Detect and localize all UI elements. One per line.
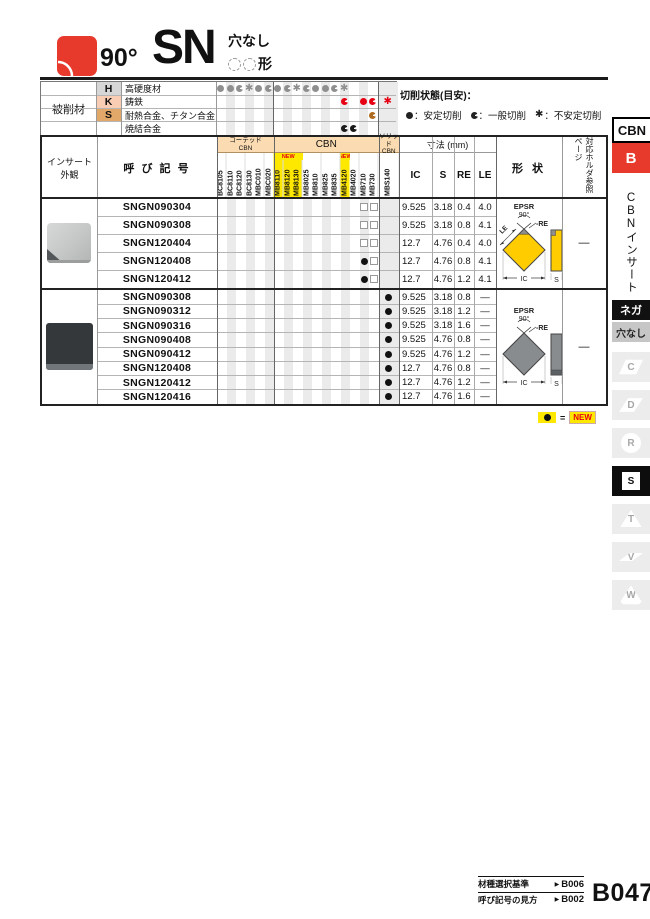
insert-designation: SNGN120408 xyxy=(97,361,217,375)
col-header-holder-ref: 対応ホルダ参照ページ xyxy=(562,137,606,198)
insert-photo-edge xyxy=(46,364,93,370)
insert-designation: SNGN120404 xyxy=(97,234,217,252)
mark-full xyxy=(385,308,392,315)
column-divider xyxy=(432,137,433,404)
footer-link-page-ref[interactable]: ▶B002 xyxy=(555,894,584,905)
sidebar-section-letter[interactable]: B xyxy=(612,143,650,173)
grade-column-label-MB835: MB835 xyxy=(331,153,341,198)
header-rule xyxy=(40,77,608,80)
workpiece-name: 高硬度材 xyxy=(121,82,216,95)
dim-ic: 9.525 xyxy=(399,347,432,361)
application-mark-cell xyxy=(340,122,350,135)
grade-availability-cell xyxy=(379,376,400,390)
insert-photo-solid xyxy=(46,323,93,370)
dim-le: — xyxy=(474,361,496,375)
col-header-s: S xyxy=(432,153,454,198)
dim-s: 3.18 xyxy=(432,216,454,234)
dim-le: — xyxy=(474,290,496,304)
dim-ic: 9.525 xyxy=(399,304,432,318)
col-header-le: LE xyxy=(474,153,496,198)
mark-full xyxy=(385,351,392,358)
dim-ic: 9.525 xyxy=(399,216,432,234)
cutting-legend-item-label: ：一般切削 xyxy=(479,108,527,122)
grade-column-label-BC8120: BC8120 xyxy=(236,153,246,198)
mark-full xyxy=(361,276,368,283)
sidebar-shape-tab-w[interactable]: W xyxy=(612,580,650,610)
mark-square xyxy=(370,257,378,265)
application-mark-cell xyxy=(368,95,378,108)
mark-full xyxy=(385,294,392,301)
insert-photo-tipped xyxy=(47,223,91,263)
column-divider xyxy=(399,137,400,404)
grade-group-header: ソリッド CBN xyxy=(379,137,400,153)
shape-tab-letter: R xyxy=(627,438,634,449)
mark-full xyxy=(322,85,329,92)
mark-square xyxy=(360,239,368,247)
insert-designation: SNGN090312 xyxy=(97,304,217,318)
dim-ic: 12.7 xyxy=(399,390,432,404)
dim-le: — xyxy=(474,333,496,347)
mark-unstable: ✱ xyxy=(384,98,392,106)
sidebar-shape-tab-t[interactable]: T xyxy=(612,504,650,534)
row-divider xyxy=(97,347,496,348)
mark-square xyxy=(360,221,368,229)
grade-column-label-BC8105: BC8105 xyxy=(217,153,227,198)
grade-availability-cell xyxy=(360,234,370,252)
mark-general xyxy=(236,85,243,92)
application-mark-cell xyxy=(359,95,369,108)
trigon-icon: W xyxy=(620,585,642,605)
footer-reference-links: 材種選択基準▶B006呼び記号の見方▶B002 xyxy=(478,876,584,907)
application-mark-cell xyxy=(273,82,283,95)
arrow-right-icon: ▶ xyxy=(555,881,560,888)
cutting-legend-item-label: ：不安定切削 xyxy=(544,108,601,122)
mark-square xyxy=(370,275,378,283)
col-header-designation: 呼 び 記 号 xyxy=(97,137,217,198)
cutting-legend-item: ✱：不安定切削 xyxy=(535,108,601,122)
page-number: B047 xyxy=(592,879,650,908)
arrow-right-icon: ▶ xyxy=(555,896,560,903)
group-divider xyxy=(42,288,606,290)
dim-ic: 9.525 xyxy=(399,290,432,304)
grade-availability-cell xyxy=(369,270,379,288)
grade-column-stripe xyxy=(322,198,332,404)
dim-re: 0.8 xyxy=(454,252,474,270)
dim-ic: 12.7 xyxy=(399,361,432,375)
new-tag: NEW xyxy=(274,153,303,160)
shape-diagram-solid: EPSR 90° -RE IC S xyxy=(497,304,563,390)
hole-type-block: 穴なし 形 xyxy=(228,31,272,74)
grade-column-label-MBC010: MBC010 xyxy=(255,153,265,198)
insert-designation: SNGN120416 xyxy=(97,390,217,404)
grade-availability-cell xyxy=(360,198,370,216)
mark-square xyxy=(360,203,368,211)
application-mark-cell xyxy=(302,82,312,95)
grade-availability-cell xyxy=(379,290,400,304)
workpiece-code xyxy=(96,122,121,135)
workpiece-name: 焼結合金 xyxy=(121,122,216,135)
column-divider xyxy=(217,137,218,404)
dim-re: 0.4 xyxy=(454,198,474,216)
footer-link-label: 呼び記号の見方 xyxy=(478,894,538,906)
workpiece-code: S xyxy=(96,109,121,122)
shape-tab-letter: W xyxy=(626,590,635,601)
dim-re: 0.4 xyxy=(454,234,474,252)
dim-le: 4.0 xyxy=(474,234,496,252)
row-divider xyxy=(97,252,496,253)
col-header-shape: 形 状 xyxy=(496,137,562,198)
mark-general xyxy=(369,98,376,105)
grade-column-stripe xyxy=(284,198,294,404)
new-legend-equals: = xyxy=(560,413,565,423)
new-tag: NEW xyxy=(341,153,351,160)
application-mark-cell xyxy=(226,82,236,95)
grade-availability-cell xyxy=(379,390,400,404)
svg-text:IC: IC xyxy=(521,276,528,283)
cutting-state-legend: 切削状態(目安)： ：安定切削：一般切削✱：不安定切削 xyxy=(400,87,615,122)
dim-s: 4.76 xyxy=(432,270,454,288)
shape-tab-letter: C xyxy=(627,362,634,373)
new-legend-symbol xyxy=(538,412,556,423)
workpiece-code: H xyxy=(96,82,121,95)
mark-full xyxy=(385,365,392,372)
mark-unstable: ✱ xyxy=(293,85,301,93)
svg-text:-RE: -RE xyxy=(536,325,548,332)
dim-le: 4.1 xyxy=(474,252,496,270)
mark-full xyxy=(217,85,224,92)
row-divider xyxy=(97,332,496,333)
cutting-legend-items: ：安定切削：一般切削✱：不安定切削 xyxy=(406,108,615,122)
dim-ic: 9.525 xyxy=(399,319,432,333)
mark-general xyxy=(341,98,348,105)
svg-text:S: S xyxy=(554,277,559,284)
column-divider xyxy=(474,137,475,404)
cutting-legend-item: ：安定切削 xyxy=(406,108,462,122)
sidebar-shape-tab-v[interactable]: V xyxy=(612,542,650,572)
footer-link-label: 材種選択基準 xyxy=(478,878,529,890)
column-divider xyxy=(121,82,122,135)
sidebar-hole-tab[interactable]: 穴なし xyxy=(612,322,650,342)
application-mark-cell xyxy=(216,82,226,95)
dashed-circle-icon xyxy=(243,58,256,71)
diamond-55-icon: D xyxy=(619,396,643,414)
application-mark-cell xyxy=(368,109,378,122)
dim-le: — xyxy=(474,319,496,333)
dim-re: 0.8 xyxy=(454,361,474,375)
square-icon: S xyxy=(622,472,640,490)
svg-text:S: S xyxy=(554,381,559,388)
dim-re: 1.6 xyxy=(454,319,474,333)
holder-ref: — xyxy=(562,198,606,288)
insert-table: インサート外観 呼 び 記 号 寸法 (mm) IC S RE LE 形 状 対… xyxy=(40,135,608,406)
workpiece-name: 耐熱合金、チタン合金 xyxy=(121,109,216,122)
sidebar-section-label: CBNインサート xyxy=(612,178,650,308)
dim-re: 0.8 xyxy=(454,216,474,234)
dim-s: 3.18 xyxy=(432,319,454,333)
column-divider xyxy=(96,82,97,135)
insert-shape-icon xyxy=(56,35,98,77)
insert-designation: SNGN120412 xyxy=(97,270,217,288)
sidebar-shape-tab-d[interactable]: D xyxy=(612,390,650,420)
header-divider xyxy=(42,197,606,199)
grade-availability-cell xyxy=(360,270,370,288)
footer-link-page-ref[interactable]: ▶B006 xyxy=(555,879,584,890)
mark-general xyxy=(265,85,272,92)
application-mark-cell xyxy=(340,95,350,108)
dim-re: 1.6 xyxy=(454,390,474,404)
sidebar-nega-tab[interactable]: ネガ xyxy=(612,300,650,320)
mark-full xyxy=(385,322,392,329)
catalog-page: 90° SN 穴なし 形 被削材H高硬度材✱✱✱K鋳鉄✱S耐熱合金、チタン合金焼… xyxy=(0,0,650,919)
dashed-circle-icon xyxy=(228,58,241,71)
dim-re: 1.2 xyxy=(454,270,474,288)
grade-availability-cell xyxy=(369,252,379,270)
grade-availability-cell xyxy=(369,234,379,252)
row-divider xyxy=(97,270,496,271)
hole-type-label: 穴なし xyxy=(228,31,272,51)
shape-tab-letter: S xyxy=(628,476,635,487)
mark-unstable: ✱ xyxy=(535,111,543,119)
dim-le: — xyxy=(474,376,496,390)
grade-availability-cell xyxy=(379,347,400,361)
dim-s: 4.76 xyxy=(432,361,454,375)
row-divider xyxy=(41,95,396,96)
grade-column-stripe xyxy=(341,198,351,404)
grade-availability-cell xyxy=(360,252,370,270)
shape-tab-letter: T xyxy=(628,514,634,525)
dim-s: 4.76 xyxy=(432,390,454,404)
col-header-dimensions: 寸法 (mm) xyxy=(399,137,496,153)
sidebar-shape-tab-s[interactable]: S xyxy=(612,466,650,496)
column-divider xyxy=(273,82,274,135)
round-icon: R xyxy=(621,433,641,453)
dim-s: 4.76 xyxy=(432,333,454,347)
column-divider xyxy=(379,137,380,404)
mark-general xyxy=(284,85,291,92)
column-divider xyxy=(562,137,563,404)
insert-designation: SNGN090412 xyxy=(97,347,217,361)
dim-ic: 12.7 xyxy=(399,376,432,390)
mark-full xyxy=(312,85,319,92)
column-divider xyxy=(378,82,379,135)
application-mark-cell: ✱ xyxy=(378,95,399,108)
application-mark-cell xyxy=(311,82,321,95)
new-legend-label: NEW xyxy=(569,411,596,424)
insert-designation: SNGN120408 xyxy=(97,252,217,270)
col-header-appearance: インサート外観 xyxy=(42,137,97,198)
dim-le: 4.1 xyxy=(474,270,496,288)
mark-full xyxy=(274,85,281,92)
mark-unstable: ✱ xyxy=(340,85,348,93)
mark-general xyxy=(369,112,376,119)
dim-re: 0.8 xyxy=(454,290,474,304)
application-mark-cell: ✱ xyxy=(245,82,255,95)
hole-shape-row: 形 xyxy=(228,54,272,74)
insert-photo-edge xyxy=(47,260,91,263)
application-mark-cell: ✱ xyxy=(292,82,302,95)
application-mark-cell: ✱ xyxy=(340,82,350,95)
grade-availability-cell xyxy=(379,304,400,318)
mark-general xyxy=(350,125,357,132)
dim-ic: 9.525 xyxy=(399,333,432,347)
dim-s: 4.76 xyxy=(432,252,454,270)
grade-availability-cell xyxy=(369,198,379,216)
dim-le: 4.0 xyxy=(474,198,496,216)
insert-designation: SNGN090308 xyxy=(97,290,217,304)
application-mark-cell xyxy=(264,82,274,95)
mark-general xyxy=(471,112,478,119)
mark-unstable: ✱ xyxy=(245,85,253,93)
page-title-series: SN xyxy=(152,20,215,75)
column-divider xyxy=(97,137,98,404)
mark-full xyxy=(544,414,551,421)
insert-designation: SNGN090304 xyxy=(97,198,217,216)
grade-column-stripe xyxy=(227,198,237,404)
grade-availability-cell xyxy=(379,319,400,333)
mark-full xyxy=(360,98,367,105)
dim-ic: 12.7 xyxy=(399,234,432,252)
application-mark-cell xyxy=(321,82,331,95)
column-divider xyxy=(274,137,275,404)
row-divider xyxy=(97,375,496,376)
dim-s: 4.76 xyxy=(432,234,454,252)
mark-square xyxy=(370,221,378,229)
dim-s: 3.18 xyxy=(432,290,454,304)
grade-availability-cell xyxy=(379,333,400,347)
col-header-re: RE xyxy=(454,153,474,198)
shape-diagram-tipped: EPSR 90° -RE LE IC S xyxy=(497,200,563,286)
application-mark-cell xyxy=(349,122,359,135)
grade-availability-cell xyxy=(360,216,370,234)
row-divider xyxy=(97,216,496,217)
parallelogram-80-icon: C xyxy=(619,358,643,376)
svg-text:LE: LE xyxy=(498,224,509,235)
shape-tab-letter: V xyxy=(628,552,635,563)
application-mark-cell xyxy=(283,82,293,95)
insert-designation: SNGN090308 xyxy=(97,216,217,234)
dim-le: — xyxy=(474,390,496,404)
footer-link-row[interactable]: 呼び記号の見方▶B002 xyxy=(478,892,584,908)
sidebar-tab-cbn[interactable]: CBN xyxy=(612,117,650,143)
col-header-ic: IC xyxy=(399,153,432,198)
mark-square xyxy=(370,203,378,211)
mark-full xyxy=(255,85,262,92)
mark-full xyxy=(406,112,413,119)
grade-group-header: コーテッド CBN xyxy=(217,137,274,153)
grade-column-stripe xyxy=(303,198,313,404)
dim-ic: 9.525 xyxy=(399,198,432,216)
page-title-angle: 90° xyxy=(100,44,138,73)
grade-availability-cell xyxy=(369,216,379,234)
footer-link-page: B002 xyxy=(561,894,584,905)
column-divider xyxy=(216,82,217,135)
grade-column-label-MBS140: MBS140 xyxy=(379,153,400,198)
dim-re: 0.8 xyxy=(454,333,474,347)
diamond-35-icon: V xyxy=(619,548,643,566)
svg-text:IC: IC xyxy=(521,380,528,387)
row-divider xyxy=(41,121,396,122)
footer-link-page: B006 xyxy=(561,879,584,890)
dim-re: 1.2 xyxy=(454,304,474,318)
mark-full xyxy=(361,258,368,265)
application-mark-cell xyxy=(235,82,245,95)
mark-general xyxy=(341,125,348,132)
grade-column-stripe xyxy=(265,198,275,404)
mark-full xyxy=(227,85,234,92)
dim-le: — xyxy=(474,304,496,318)
row-divider xyxy=(97,361,496,362)
dim-s: 3.18 xyxy=(432,304,454,318)
cutting-legend-item: ：一般切削 xyxy=(471,108,527,122)
holder-ref: — xyxy=(562,290,606,404)
shape-suffix-label: 形 xyxy=(258,54,272,74)
dim-ic: 12.7 xyxy=(399,252,432,270)
dim-le: — xyxy=(474,347,496,361)
column-divider xyxy=(454,137,455,404)
grade-column-label-MB4020: MB4020 xyxy=(350,153,360,198)
mark-full xyxy=(385,336,392,343)
row-divider xyxy=(97,304,496,305)
grade-column-label-MB810: MB810 xyxy=(312,153,322,198)
dim-ic: 12.7 xyxy=(399,270,432,288)
mark-full xyxy=(385,393,392,400)
dim-s: 3.18 xyxy=(432,198,454,216)
footer-link-row[interactable]: 材種選択基準▶B006 xyxy=(478,876,584,892)
cutting-legend-item-label: ：安定切削 xyxy=(414,108,462,122)
cutting-legend-title: 切削状態(目安)： xyxy=(400,87,615,102)
mark-general xyxy=(303,85,310,92)
sidebar-shape-tab-c[interactable]: C xyxy=(612,352,650,382)
dim-re: 1.2 xyxy=(454,376,474,390)
row-divider xyxy=(97,234,496,235)
workpiece-name: 鋳鉄 xyxy=(121,95,216,108)
svg-text:EPSR: EPSR xyxy=(514,306,535,315)
svg-text:EPSR: EPSR xyxy=(514,202,535,211)
application-mark-cell xyxy=(254,82,264,95)
new-product-legend: = NEW xyxy=(538,411,596,424)
svg-text:-RE: -RE xyxy=(536,221,548,228)
insert-designation: SNGN090316 xyxy=(97,319,217,333)
grade-availability-cell xyxy=(379,361,400,375)
dim-s: 4.76 xyxy=(432,376,454,390)
mark-full xyxy=(385,379,392,386)
insert-designation: SNGN120412 xyxy=(97,376,217,390)
sidebar-shape-tab-r[interactable]: R xyxy=(612,428,650,458)
workpiece-code: K xyxy=(96,95,121,108)
grade-column-stripe xyxy=(246,198,256,404)
row-divider xyxy=(97,318,496,319)
row-divider xyxy=(97,389,496,390)
column-divider xyxy=(496,137,497,404)
dim-re: 1.2 xyxy=(454,347,474,361)
insert-designation: SNGN090408 xyxy=(97,333,217,347)
mark-square xyxy=(370,239,378,247)
dim-le: 4.1 xyxy=(474,216,496,234)
dim-s: 4.76 xyxy=(432,347,454,361)
grade-group-header: CBN xyxy=(274,137,379,153)
shape-tab-letter: D xyxy=(627,400,634,411)
mark-general xyxy=(331,85,338,92)
triangle-icon: T xyxy=(620,509,642,529)
application-mark-cell xyxy=(330,82,340,95)
workpiece-material-table: 被削材H高硬度材✱✱✱K鋳鉄✱S耐熱合金、チタン合金焼結合金 xyxy=(40,81,397,135)
grade-column-label-MB730: MB730 xyxy=(369,153,379,198)
row-divider xyxy=(41,108,396,109)
